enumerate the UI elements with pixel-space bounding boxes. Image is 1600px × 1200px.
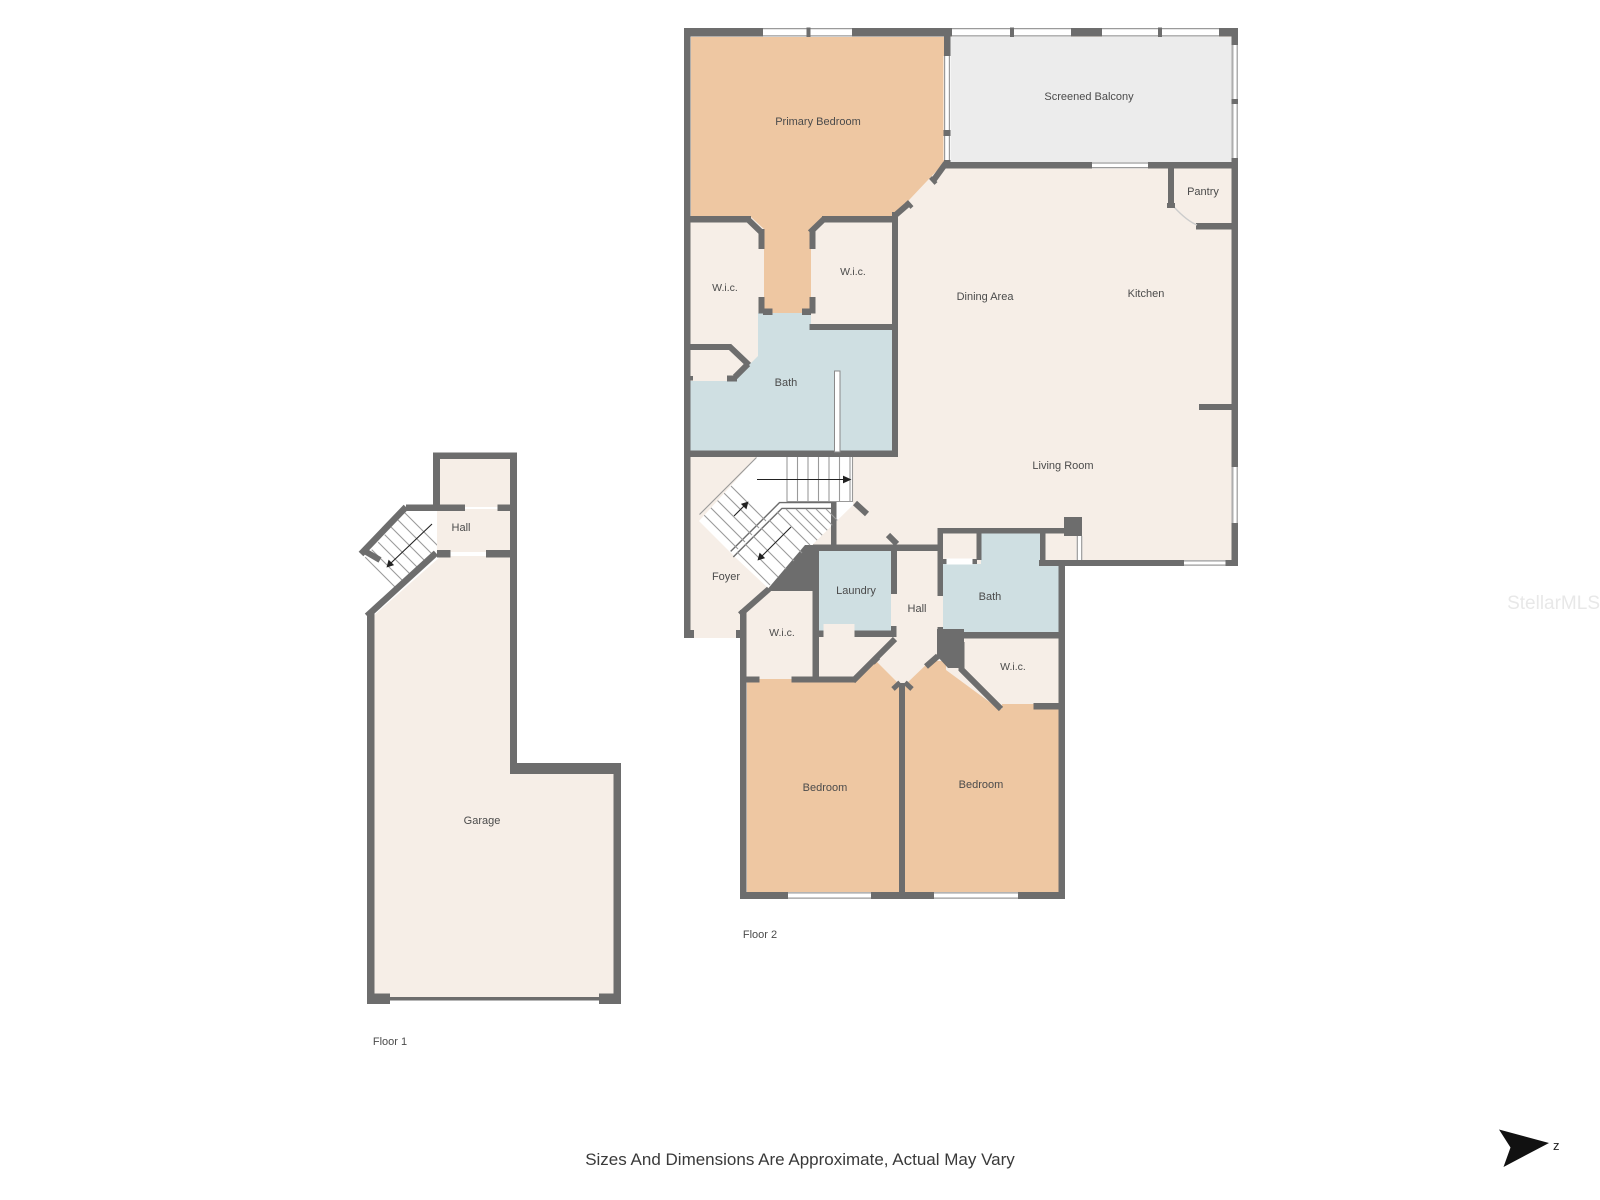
svg-text:Foyer: Foyer: [712, 571, 740, 583]
svg-text:Pantry: Pantry: [1187, 186, 1219, 198]
svg-text:Bath: Bath: [979, 591, 1002, 603]
svg-text:Bedroom: Bedroom: [959, 779, 1004, 791]
svg-text:StellarMLS: StellarMLS: [1507, 593, 1600, 614]
svg-text:Laundry: Laundry: [836, 585, 876, 597]
svg-text:Hall: Hall: [452, 522, 471, 534]
svg-text:Garage: Garage: [464, 815, 501, 827]
svg-text:Living Room: Living Room: [1032, 460, 1093, 472]
svg-text:Sizes And Dimensions Are Appro: Sizes And Dimensions Are Approximate, Ac…: [585, 1150, 1015, 1169]
svg-text:Floor 1: Floor 1: [373, 1036, 407, 1048]
svg-text:W.i.c.: W.i.c.: [769, 627, 795, 639]
svg-text:Dining Area: Dining Area: [957, 291, 1015, 303]
svg-text:Hall: Hall: [908, 603, 927, 615]
svg-text:W.i.c.: W.i.c.: [712, 282, 738, 294]
svg-text:Screened Balcony: Screened Balcony: [1044, 91, 1134, 103]
svg-text:Bedroom: Bedroom: [803, 782, 848, 794]
svg-text:W.i.c.: W.i.c.: [1000, 661, 1026, 673]
svg-text:Kitchen: Kitchen: [1128, 288, 1165, 300]
svg-text:Primary Bedroom: Primary Bedroom: [775, 116, 861, 128]
svg-text:z: z: [1553, 1138, 1560, 1153]
svg-text:W.i.c.: W.i.c.: [840, 266, 866, 278]
svg-text:Floor 2: Floor 2: [743, 929, 777, 941]
svg-text:Bath: Bath: [775, 377, 798, 389]
